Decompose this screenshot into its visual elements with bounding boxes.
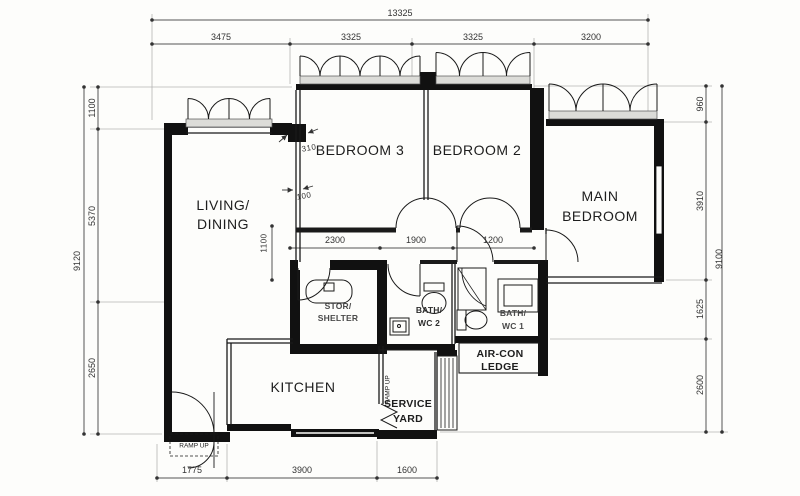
room-label-living-line2: DINING xyxy=(197,216,249,232)
room-label-wc2-line2: WC 2 xyxy=(418,318,440,328)
room-label-bedroom2: BEDROOM 2 xyxy=(433,142,522,158)
room-label-wc1-line2: WC 1 xyxy=(502,321,524,331)
room-label-bedroom3: BEDROOM 3 xyxy=(316,142,405,158)
dim-bottom-1: 1775 xyxy=(182,465,202,475)
dim-left-3: 2650 xyxy=(87,358,97,378)
dim-left-2: 5370 xyxy=(87,206,97,226)
dim-top-2: 3325 xyxy=(341,32,361,42)
dim-mid-1: 2300 xyxy=(325,235,345,245)
dim-right-4: 2600 xyxy=(695,375,705,395)
ramp-up-entrance-label: RAMP UP xyxy=(179,443,209,450)
dim-bottom-2: 3900 xyxy=(292,465,312,475)
room-label-living-line1: LIVING/ xyxy=(196,197,249,213)
room-label-aircon-ledge-line1: AIR-CON xyxy=(476,348,523,360)
dim-bottom-3: 1600 xyxy=(397,465,417,475)
room-label-service-yard-line2: YARD xyxy=(393,413,423,425)
room-label-wc1-line1: BATH/ xyxy=(500,308,526,318)
dim-mid-3: 1200 xyxy=(483,235,503,245)
thin-walls xyxy=(186,90,662,433)
room-label-wc2-line1: BATH/ xyxy=(416,305,442,315)
dim-right-total: 9100 xyxy=(714,249,724,269)
dim-left-1: 1100 xyxy=(87,98,97,117)
ramp-up-yard-label: RAMP UP xyxy=(385,375,392,405)
main-bedroom-side-window xyxy=(656,166,662,234)
dim-top-3: 3325 xyxy=(463,32,483,42)
dim-top-total: 13325 xyxy=(387,8,412,18)
floor-plan: LIVING/ DINING BEDROOM 3 BEDROOM 2 MAIN … xyxy=(0,0,800,496)
wc1-toilet xyxy=(465,311,487,329)
room-label-main-bedroom-line1: MAIN xyxy=(582,188,619,204)
room-label-store-shelter-line1: STOR/ xyxy=(325,301,352,311)
dim-right-3: 1625 xyxy=(695,299,705,319)
dim-right-2: 3910 xyxy=(695,191,705,211)
room-label-main-bedroom-line2: BEDROOM xyxy=(562,208,638,224)
room-label-store-shelter-line2: SHELTER xyxy=(318,313,358,323)
dim-top-1: 3475 xyxy=(211,32,231,42)
dim-mid-vertical: 1100 xyxy=(260,233,269,252)
dim-right-1: 960 xyxy=(695,96,705,111)
dim-left-total: 9120 xyxy=(72,251,82,271)
dim-mid-2: 1900 xyxy=(406,235,426,245)
dim-top-4: 3200 xyxy=(581,32,601,42)
room-label-aircon-ledge-line2: LEDGE xyxy=(481,361,519,373)
room-label-kitchen: KITCHEN xyxy=(271,379,336,395)
